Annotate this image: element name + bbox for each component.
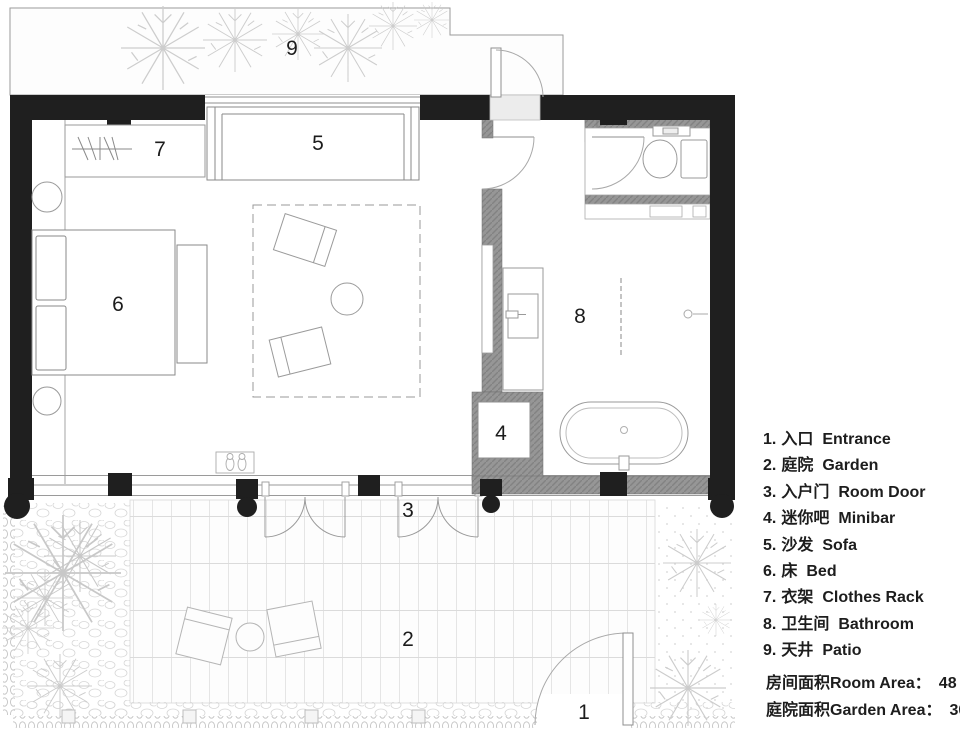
fence-post bbox=[305, 710, 318, 723]
legend-item-minibar: 4. 迷你吧 Minibar bbox=[763, 504, 925, 530]
bathroom-counter bbox=[585, 204, 710, 219]
legend-zh: 庭院 bbox=[781, 451, 813, 475]
legend-num: 3. bbox=[763, 484, 776, 502]
legend-num: 2. bbox=[763, 457, 776, 475]
fence-post bbox=[62, 710, 75, 723]
column-base bbox=[482, 495, 500, 513]
room-label-entrance: 1 bbox=[578, 701, 590, 724]
column-base bbox=[4, 493, 30, 519]
patio-door-leaf bbox=[491, 48, 501, 97]
side-table bbox=[33, 387, 61, 415]
legend: 1. 入口 Entrance 2. 庭院 Garden 3. 入户门 Room … bbox=[763, 425, 925, 663]
legend-en: Entrance bbox=[822, 431, 890, 449]
legend-item-room-door: 3. 入户门 Room Door bbox=[763, 478, 925, 504]
room-area-row: 房间面积 Room Area ： 48 ㎡ bbox=[766, 669, 960, 696]
legend-item-garden: 2. 庭院 Garden bbox=[763, 451, 925, 477]
room-label-bathroom: 8 bbox=[574, 305, 586, 328]
wall-column bbox=[358, 475, 380, 496]
fence-post bbox=[412, 710, 425, 723]
room-label-sofa: 5 bbox=[312, 132, 324, 155]
door-jamb bbox=[262, 482, 269, 496]
garden-chair bbox=[267, 601, 321, 657]
entrance-door-leaf bbox=[623, 633, 633, 725]
legend-num: 1. bbox=[763, 431, 776, 449]
legend-zh: 卫生间 bbox=[781, 610, 829, 634]
room-label-bed: 6 bbox=[112, 293, 124, 316]
legend-item-bed: 6. 床 Bed bbox=[763, 557, 925, 583]
legend-zh: 衣架 bbox=[781, 583, 813, 607]
fence-post bbox=[183, 710, 196, 723]
pillow bbox=[36, 306, 66, 370]
legend-item-sofa: 5. 沙发 Sofa bbox=[763, 531, 925, 557]
bed-bench bbox=[177, 245, 207, 363]
room-label-room-door: 3 bbox=[402, 499, 414, 522]
pocket-door-niche bbox=[482, 245, 493, 353]
garden-area-sep: ： bbox=[925, 696, 941, 720]
legend-num: 9. bbox=[763, 642, 776, 660]
coffee-table bbox=[331, 283, 363, 315]
garden-bed-left bbox=[13, 503, 130, 715]
sink-vanity-symbol bbox=[503, 268, 543, 390]
room-area-value: 48 bbox=[939, 675, 957, 693]
legend-en: Bathroom bbox=[838, 616, 914, 634]
slippers-symbol bbox=[216, 452, 254, 473]
bathtub-symbol bbox=[560, 402, 688, 470]
legend-num: 5. bbox=[763, 537, 776, 555]
legend-num: 4. bbox=[763, 510, 776, 528]
garden-area-label-en: Garden Area bbox=[830, 702, 925, 720]
clothes-rack-symbol bbox=[65, 125, 205, 177]
garden-area-value: 30 bbox=[949, 702, 960, 720]
room-area-label-en: Room Area bbox=[830, 675, 915, 693]
room-area-label-zh: 房间面积 bbox=[766, 669, 830, 693]
garden-deck bbox=[130, 500, 655, 703]
column-base bbox=[237, 497, 257, 517]
garden-area bbox=[2, 500, 735, 732]
room-area-sep: ： bbox=[915, 669, 931, 693]
room-label-patio: 9 bbox=[286, 37, 298, 60]
legend-zh: 床 bbox=[781, 557, 797, 581]
side-table bbox=[32, 182, 62, 212]
legend-zh: 天井 bbox=[781, 636, 813, 660]
legend-num: 8. bbox=[763, 616, 776, 634]
wall-column bbox=[236, 479, 258, 499]
legend-en: Patio bbox=[822, 642, 861, 660]
legend-num: 6. bbox=[763, 563, 776, 581]
legend-zh: 迷你吧 bbox=[781, 504, 829, 528]
door-jamb bbox=[395, 482, 402, 496]
wall-column bbox=[600, 472, 627, 496]
floor-plan-page: 9 7 5 6 8 4 3 2 1 1. 入口 Entrance 2. 庭院 G… bbox=[0, 0, 960, 733]
room-label-minibar: 4 bbox=[495, 422, 507, 445]
garden-area-row: 庭院面积 Garden Area ： 30 ㎡ bbox=[766, 696, 960, 723]
legend-en: Clothes Rack bbox=[822, 589, 923, 607]
pillow bbox=[36, 236, 66, 300]
legend-item-clothes-rack: 7. 衣架 Clothes Rack bbox=[763, 583, 925, 609]
room-label-clothes-rack: 7 bbox=[154, 138, 166, 161]
garden-area-label-zh: 庭院面积 bbox=[766, 696, 830, 720]
wall-column bbox=[480, 479, 502, 496]
legend-item-entrance: 1. 入口 Entrance bbox=[763, 425, 925, 451]
legend-zh: 入口 bbox=[781, 425, 813, 449]
garden-bed-right bbox=[655, 503, 735, 715]
door-jamb bbox=[342, 482, 349, 496]
legend-item-bathroom: 8. 卫生间 Bathroom bbox=[763, 610, 925, 636]
garden-table bbox=[236, 623, 264, 651]
wall-column bbox=[108, 473, 132, 496]
legend-zh: 入户门 bbox=[781, 478, 829, 502]
wall-column bbox=[107, 100, 131, 127]
legend-en: Room Door bbox=[838, 484, 925, 502]
room-label-garden: 2 bbox=[402, 628, 414, 651]
wall-column bbox=[600, 95, 627, 125]
legend-item-patio: 9. 天井 Patio bbox=[763, 636, 925, 662]
legend-num: 7. bbox=[763, 589, 776, 607]
area-summary: 房间面积 Room Area ： 48 ㎡ 庭院面积 Garden Area ：… bbox=[766, 669, 960, 723]
column-base bbox=[710, 494, 734, 518]
legend-en: Minibar bbox=[838, 510, 895, 528]
legend-en: Garden bbox=[822, 457, 878, 475]
legend-en: Sofa bbox=[822, 537, 857, 555]
legend-zh: 沙发 bbox=[781, 531, 813, 555]
garden-fence-left bbox=[3, 505, 15, 715]
legend-en: Bed bbox=[806, 563, 836, 581]
